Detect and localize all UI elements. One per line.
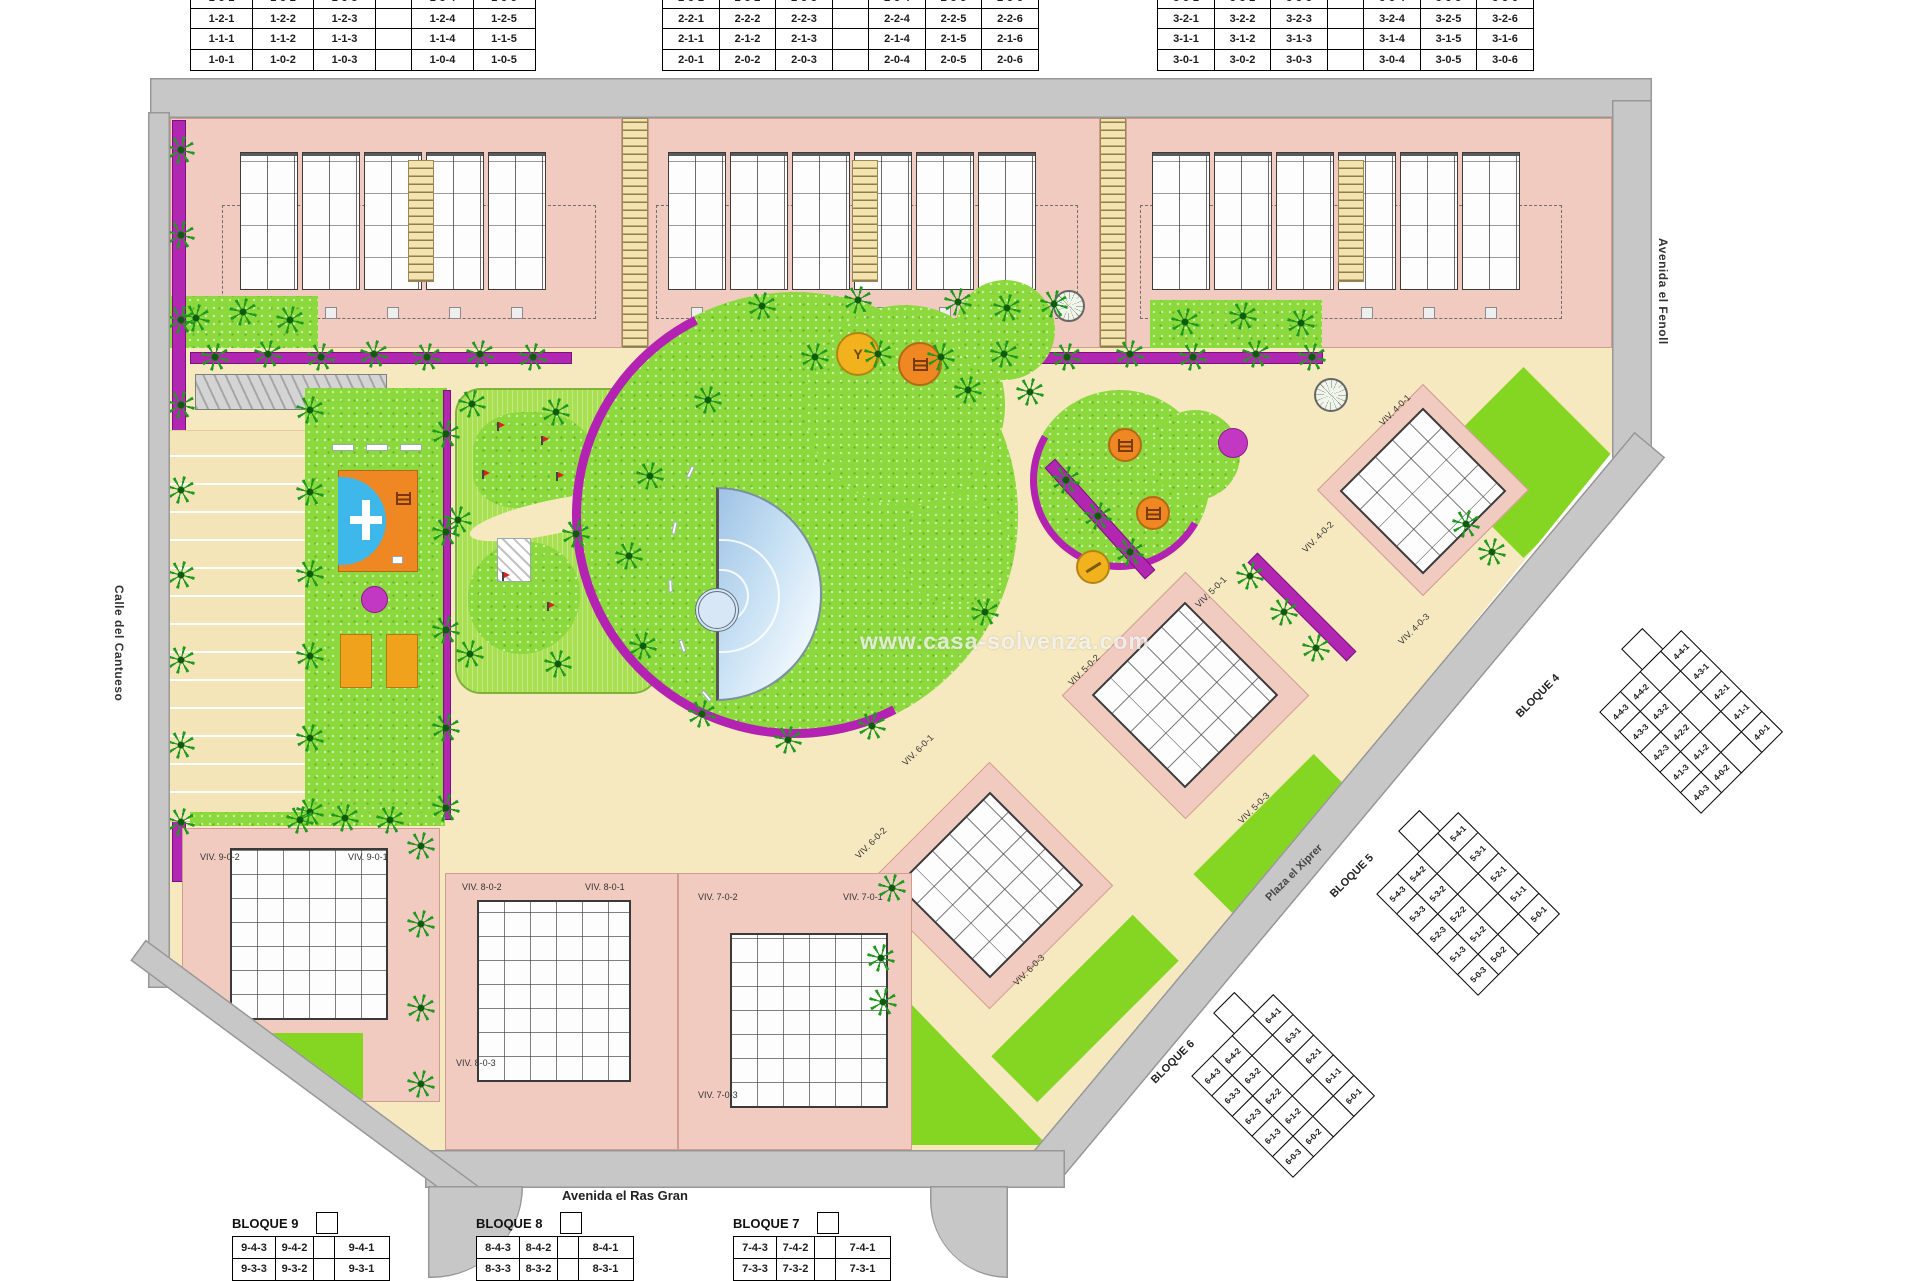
unit-cell: 1-0-1 — [190, 49, 253, 71]
unit-label: VIV. 4-0-2 — [1300, 519, 1335, 554]
unit-cell: 7-4-3 — [733, 1236, 777, 1259]
stairwell — [852, 160, 878, 282]
table-row: 2-1-12-1-22-1-32-1-42-1-52-1-6 — [662, 28, 1038, 50]
unit-cell: 2-0-4 — [868, 49, 926, 71]
unit-cell: 1-0-2 — [252, 49, 315, 71]
unit-cell: 7-4-2 — [776, 1236, 816, 1259]
palm-tree-icon — [993, 294, 1021, 322]
unit-cell: 2-2-3 — [775, 8, 833, 30]
petanque-court — [386, 634, 418, 688]
unit-cell: 3-2-5 — [1420, 8, 1478, 30]
palm-tree-icon — [376, 806, 404, 834]
unit-cell: 3-2-4 — [1363, 8, 1421, 30]
unit-label: VIV. 6-0-2 — [853, 825, 888, 860]
play-equipment-icon — [913, 358, 928, 371]
climber-icon — [396, 492, 411, 505]
unit-cell: 1-2-3 — [313, 8, 376, 30]
palm-tree-icon — [694, 386, 722, 414]
palm-tree-icon — [456, 640, 484, 668]
palm-tree-icon — [432, 616, 460, 644]
table-tennis-icon — [350, 516, 382, 524]
palm-tree-icon — [286, 806, 314, 834]
palm-tree-icon — [844, 286, 872, 314]
palm-tree-icon — [1179, 343, 1207, 371]
bench — [668, 579, 672, 592]
palm-tree-icon — [167, 561, 195, 589]
palm-tree-icon — [444, 506, 472, 534]
palm-tree-icon — [1084, 502, 1112, 530]
unit-cell — [375, 28, 413, 50]
table-row: 1-0-11-0-21-0-31-0-41-0-5 — [190, 49, 534, 71]
bush — [1218, 428, 1248, 458]
apartment-unit-plan — [1400, 152, 1458, 290]
climber-circle — [1136, 496, 1170, 530]
palm-tree-icon — [1116, 538, 1144, 566]
apartment-unit-plan — [1152, 152, 1210, 290]
unit-cell: 9-4-1 — [334, 1236, 390, 1259]
apartment-unit-plan — [730, 152, 788, 290]
unit-cell: 1-0-4 — [411, 49, 474, 71]
unit-cell — [832, 28, 870, 50]
bench — [366, 444, 388, 451]
unit-cell: 2-1-2 — [719, 28, 777, 50]
table-header: BLOQUE 8 — [476, 1212, 632, 1234]
palm-tree-icon — [229, 298, 257, 326]
site-plan-canvas: Y VIV. 4- — [0, 0, 1920, 1280]
bloque-8-unit-table: BLOQUE 8 8-4-38-4-28-4-1 8-3-38-3-28-3-1 — [476, 1212, 632, 1281]
unit-cell: 2-2-5 — [925, 8, 983, 30]
unit-cell: 7-3-3 — [733, 1258, 777, 1281]
unit-cell: 2-1-4 — [868, 28, 926, 50]
unit-cell: 2-0-1 — [662, 49, 720, 71]
road-north — [150, 78, 1652, 118]
palm-tree-icon — [167, 391, 195, 419]
palm-tree-icon — [562, 520, 590, 548]
hedge-row — [443, 390, 451, 820]
palm-tree-icon — [748, 292, 776, 320]
palm-tree-icon — [1242, 340, 1270, 368]
apartment-unit-plan — [792, 152, 850, 290]
palm-tree-icon — [407, 994, 435, 1022]
palm-tree-icon — [1478, 538, 1506, 566]
unit-cell — [1327, 28, 1365, 50]
spa-pool — [695, 588, 739, 632]
unit-cell: 2-1-1 — [662, 28, 720, 50]
palm-tree-icon — [1229, 302, 1257, 330]
unit-cell: 2-0-2 — [719, 49, 777, 71]
bloque-1-unit-table: 1-3-11-3-21-3-31-3-41-3-5 1-2-11-2-21-2-… — [190, 0, 534, 71]
unit-cell: 1-2-5 — [473, 8, 536, 30]
compass-rosette-icon — [1314, 378, 1348, 412]
palm-tree-icon — [167, 221, 195, 249]
unit-cell: 8-4-1 — [578, 1236, 634, 1259]
unit-cell — [557, 1258, 579, 1281]
palm-tree-icon — [360, 340, 388, 368]
bloque-2-unit-table: 2-3-12-3-22-3-32-3-42-3-52-3-6 2-2-12-2-… — [662, 0, 1038, 71]
road-south — [425, 1150, 1065, 1188]
palm-tree-icon — [1116, 340, 1144, 368]
bush — [361, 586, 388, 613]
unit-label: VIV. 7-0-2 — [698, 892, 738, 902]
stair-corridor — [1100, 118, 1126, 348]
unit-cell: 9-3-3 — [232, 1258, 276, 1281]
palm-tree-icon — [878, 874, 906, 902]
unit-cell: 3-1-6 — [1476, 28, 1534, 50]
palm-tree-icon — [629, 632, 657, 660]
unit-cell: 2-0-5 — [925, 49, 983, 71]
unit-cell: 1-2-4 — [411, 8, 474, 30]
unit-label: VIV. 8-0-1 — [585, 882, 625, 892]
palm-tree-icon — [1052, 466, 1080, 494]
unit-cell: 8-4-3 — [476, 1236, 520, 1259]
palm-tree-icon — [774, 726, 802, 754]
unit-cell: 1-1-3 — [313, 28, 376, 50]
palm-tree-icon — [544, 650, 572, 678]
palm-tree-icon — [864, 340, 892, 368]
palm-tree-icon — [254, 340, 282, 368]
unit-cell: 1-0-3 — [313, 49, 376, 71]
bloque-9-label: BLOQUE 9 — [232, 1212, 316, 1231]
palm-tree-icon — [296, 642, 324, 670]
unit-label: VIV. 6-0-1 — [900, 732, 935, 767]
palm-tree-icon — [636, 462, 664, 490]
palm-tree-icon — [927, 343, 955, 371]
unit-cell — [313, 1236, 335, 1259]
palm-tree-icon — [688, 700, 716, 728]
table-row: 2-2-12-2-22-2-32-2-42-2-52-2-6 — [662, 8, 1038, 30]
apartment-unit-plan — [1276, 152, 1334, 290]
golf-flag-icon — [482, 470, 484, 479]
palm-tree-icon — [167, 731, 195, 759]
stairwell — [1338, 160, 1364, 282]
unit-cell: 3-0-1 — [1157, 49, 1215, 71]
palm-tree-icon — [296, 478, 324, 506]
unit-cell: 1-2-1 — [190, 8, 253, 30]
play-equipment-icon — [1085, 561, 1101, 573]
unit-label: VIV. 9-0-1 — [348, 852, 388, 862]
palm-tree-icon — [1298, 343, 1326, 371]
unit-cell: 3-0-2 — [1214, 49, 1272, 71]
palm-tree-icon — [331, 804, 359, 832]
street-label-avenida-el-fenoll: Avenida el Fenoll — [1656, 238, 1670, 345]
unit-cell: 8-3-3 — [476, 1258, 520, 1281]
unit-cell: 8-4-2 — [519, 1236, 559, 1259]
table-row: 2-0-12-0-22-0-32-0-42-0-52-0-6 — [662, 49, 1038, 71]
unit-cell: 7-3-1 — [835, 1258, 891, 1281]
building-bloque-8 — [477, 900, 631, 1082]
palm-tree-icon — [1171, 308, 1199, 336]
bloque-7-unit-table: BLOQUE 7 7-4-37-4-27-4-1 7-3-37-3-27-3-1 — [733, 1212, 889, 1281]
bloque-9-unit-table: BLOQUE 9 9-4-39-4-29-4-1 9-3-39-3-29-3-1 — [232, 1212, 388, 1281]
palm-tree-icon — [296, 396, 324, 424]
unit-label: VIV. 4-0-3 — [1396, 611, 1431, 646]
palm-tree-icon — [858, 712, 886, 740]
palm-tree-icon — [801, 343, 829, 371]
unit-cell: 3-2-6 — [1476, 8, 1534, 30]
palm-tree-icon — [971, 598, 999, 626]
palm-tree-icon — [413, 343, 441, 371]
unit-cell: 3-1-5 — [1420, 28, 1478, 50]
street-label-calle-del-cantueso: Calle del Cantueso — [112, 585, 126, 701]
unit-cell: 9-4-3 — [232, 1236, 276, 1259]
apartment-unit-plan — [426, 152, 484, 290]
palm-tree-icon — [1287, 309, 1315, 337]
petanque-court — [340, 634, 372, 688]
unit-cell — [814, 1236, 836, 1259]
table-row: 3-0-13-0-23-0-33-0-43-0-53-0-6 — [1157, 49, 1533, 71]
unit-cell: 7-3-2 — [776, 1258, 816, 1281]
unit-cell: 3-0-3 — [1270, 49, 1328, 71]
play-equipment-icon — [1146, 507, 1161, 520]
building-bloque-7 — [730, 933, 888, 1108]
palm-tree-icon — [167, 136, 195, 164]
unit-cell: 2-0-3 — [775, 49, 833, 71]
table-row: 7-3-37-3-27-3-1 — [733, 1258, 889, 1281]
unit-cell — [557, 1236, 579, 1259]
unit-cell: 1-2-2 — [252, 8, 315, 30]
unit-cell: 3-2-2 — [1214, 8, 1272, 30]
unit-cell: 2-1-3 — [775, 28, 833, 50]
bloque-4-label: BLOQUE 4 — [1502, 660, 1574, 732]
table-row: 9-3-39-3-29-3-1 — [232, 1258, 388, 1281]
unit-cell: 1-1-5 — [473, 28, 536, 50]
unit-cell: 3-2-3 — [1270, 8, 1328, 30]
bloque-4-unit-table: 4-4-34-4-24-4-1 4-3-34-3-24-3-1 4-2-34-2… — [1579, 611, 1782, 814]
unit-cell — [375, 49, 413, 71]
unit-cell — [1327, 49, 1365, 71]
table-header: BLOQUE 7 — [733, 1212, 889, 1234]
palm-tree-icon — [1016, 378, 1044, 406]
unit-label: VIV. 8-0-2 — [462, 882, 502, 892]
golf-flag-icon — [502, 572, 504, 581]
table-row: 9-4-39-4-29-4-1 — [232, 1236, 388, 1259]
table-row: 8-4-38-4-28-4-1 — [476, 1236, 632, 1259]
table-header: BLOQUE 9 — [232, 1212, 388, 1234]
play-equipment-icon: Y — [853, 346, 862, 362]
golf-flag-icon — [547, 602, 549, 611]
apartment-unit-plan — [240, 152, 298, 290]
palm-tree-icon — [519, 343, 547, 371]
golf-flag-icon — [556, 472, 558, 481]
palm-tree-icon — [276, 306, 304, 334]
unit-cell: 1-1-4 — [411, 28, 474, 50]
blank-cell — [316, 1212, 338, 1234]
unit-cell: 3-1-2 — [1214, 28, 1272, 50]
palm-tree-icon — [407, 910, 435, 938]
bloque-1-units-row — [240, 152, 546, 290]
unit-cell: 3-0-4 — [1363, 49, 1421, 71]
unit-label: VIV. 7-0-1 — [843, 892, 883, 902]
palm-tree-icon — [458, 390, 486, 418]
palm-tree-icon — [990, 340, 1018, 368]
table-row: 3-1-13-1-23-1-33-1-43-1-53-1-6 — [1157, 28, 1533, 50]
seesaw-circle — [1076, 550, 1110, 584]
unit-cell: 2-2-6 — [981, 8, 1039, 30]
apartment-unit-plan — [302, 152, 360, 290]
palm-tree-icon — [307, 343, 335, 371]
apartment-unit-plan — [1462, 152, 1520, 290]
unit-cell: 7-4-1 — [835, 1236, 891, 1259]
table-row: 1-1-11-1-21-1-31-1-41-1-5 — [190, 28, 534, 50]
palm-tree-icon — [407, 832, 435, 860]
unit-label: VIV. 8-0-3 — [456, 1058, 496, 1068]
palm-tree-icon — [615, 542, 643, 570]
blank-cell — [817, 1212, 839, 1234]
palm-tree-icon — [1236, 562, 1264, 590]
unit-cell: 3-1-1 — [1157, 28, 1215, 50]
palm-tree-icon — [1040, 290, 1068, 318]
street-label-avenida-el-ras-gran: Avenida el Ras Gran — [562, 1188, 688, 1203]
unit-cell: 3-1-4 — [1363, 28, 1421, 50]
stair-corridor — [622, 118, 648, 348]
unit-cell — [313, 1258, 335, 1281]
building-bloque-9 — [230, 848, 388, 1020]
palm-tree-icon — [944, 288, 972, 316]
unit-cell: 3-1-3 — [1270, 28, 1328, 50]
play-item-icon — [392, 556, 403, 564]
palm-tree-icon — [432, 794, 460, 822]
bloque-5-unit-table: 5-4-35-4-25-4-1 5-3-35-3-25-3-1 5-2-35-2… — [1356, 793, 1559, 996]
road-east — [1612, 100, 1652, 460]
table-row: 8-3-38-3-28-3-1 — [476, 1258, 632, 1281]
unit-cell: 2-0-6 — [981, 49, 1039, 71]
palm-tree-icon — [542, 398, 570, 426]
unit-cell: 9-4-2 — [275, 1236, 315, 1259]
garden-circle — [900, 495, 1010, 605]
table-row: 1-2-11-2-21-2-31-2-41-2-5 — [190, 8, 534, 30]
unit-cell — [832, 8, 870, 30]
unit-cell: 1-1-2 — [252, 28, 315, 50]
bench — [332, 444, 354, 451]
golf-flag-icon — [497, 422, 499, 431]
bloque-7-label: BLOQUE 7 — [733, 1212, 817, 1231]
bloque-3-units-row — [1152, 152, 1520, 290]
palm-tree-icon — [296, 560, 324, 588]
unit-label: VIV. 9-0-2 — [200, 852, 240, 862]
palm-tree-icon — [432, 420, 460, 448]
unit-cell: 2-1-6 — [981, 28, 1039, 50]
palm-tree-icon — [867, 944, 895, 972]
road-corner — [930, 1186, 1008, 1278]
table-row: 7-4-37-4-27-4-1 — [733, 1236, 889, 1259]
apartment-unit-plan — [668, 152, 726, 290]
apartment-unit-plan — [1214, 152, 1272, 290]
bloque-3-unit-table: 3-3-13-3-23-3-33-3-43-3-53-3-6 3-2-13-2-… — [1157, 0, 1533, 71]
palm-tree-icon — [954, 376, 982, 404]
unit-cell: 8-3-1 — [578, 1258, 634, 1281]
unit-cell: 2-2-4 — [868, 8, 926, 30]
palm-tree-icon — [201, 343, 229, 371]
palm-tree-icon — [167, 476, 195, 504]
table-row: 3-2-13-2-23-2-33-2-43-2-53-2-6 — [1157, 8, 1533, 30]
unit-cell — [375, 8, 413, 30]
unit-cell: 8-3-2 — [519, 1258, 559, 1281]
palm-tree-icon — [167, 646, 195, 674]
unit-label: VIV. 7-0-3 — [698, 1090, 738, 1100]
bench — [400, 444, 422, 451]
unit-cell: 1-1-1 — [190, 28, 253, 50]
unit-cell: 3-0-5 — [1420, 49, 1478, 71]
apartment-unit-plan — [916, 152, 974, 290]
palm-tree-icon — [466, 340, 494, 368]
golf-flag-icon — [541, 436, 543, 445]
unit-cell — [814, 1258, 836, 1281]
road-west — [148, 112, 170, 988]
unit-cell: 2-2-1 — [662, 8, 720, 30]
palm-tree-icon — [1452, 510, 1480, 538]
palm-tree-icon — [1302, 634, 1330, 662]
building-bloque-6 — [897, 792, 1084, 979]
unit-cell: 2-1-5 — [925, 28, 983, 50]
apartment-unit-plan — [488, 152, 546, 290]
unit-cell: 3-2-1 — [1157, 8, 1215, 30]
unit-cell: 9-3-2 — [275, 1258, 315, 1281]
palm-tree-icon — [1053, 343, 1081, 371]
unit-cell: 2-2-2 — [719, 8, 777, 30]
unit-cell — [1327, 8, 1365, 30]
palm-tree-icon — [182, 304, 210, 332]
palm-tree-icon — [407, 1070, 435, 1098]
unit-cell: 9-3-1 — [334, 1258, 390, 1281]
apartment-unit-plan — [978, 152, 1036, 290]
play-equipment-icon — [1118, 439, 1133, 452]
climber-circle — [1108, 428, 1142, 462]
palm-tree-icon — [869, 988, 897, 1016]
bloque-8-label: BLOQUE 8 — [476, 1212, 560, 1231]
watermark: www.casa-solvenza.com — [860, 628, 1150, 655]
palm-tree-icon — [432, 714, 460, 742]
stairwell — [408, 160, 434, 282]
unit-cell — [832, 49, 870, 71]
palm-tree-icon — [1270, 598, 1298, 626]
palm-tree-icon — [167, 808, 195, 836]
unit-cell: 3-0-6 — [1476, 49, 1534, 71]
unit-cell: 1-0-5 — [473, 49, 536, 71]
palm-tree-icon — [296, 724, 324, 752]
blank-cell — [560, 1212, 582, 1234]
